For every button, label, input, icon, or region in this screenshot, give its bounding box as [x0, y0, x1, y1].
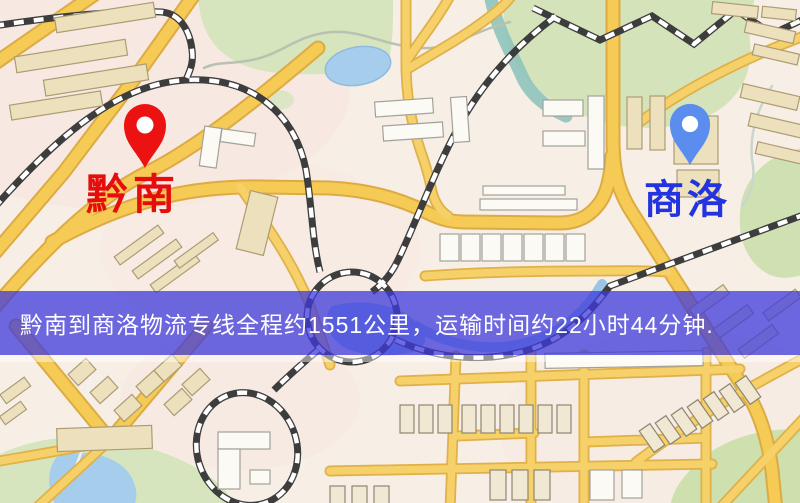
- destination-pin-icon[interactable]: [668, 102, 712, 167]
- map-background: [0, 0, 800, 503]
- banner-underline: [0, 355, 800, 362]
- route-info-banner: 黔南到商洛物流专线全程约1551公里，运输时间约22小时44分钟.: [0, 291, 800, 355]
- origin-pin-shape: [124, 104, 166, 168]
- origin-label: 黔南: [86, 175, 180, 217]
- origin-pin-icon[interactable]: [122, 102, 168, 170]
- map-canvas: 黔南 商洛 黔南到商洛物流专线全程约1551公里，运输时间约22小时44分钟.: [0, 0, 800, 503]
- destination-label: 商洛: [644, 180, 730, 220]
- route-info-text: 黔南到商洛物流专线全程约1551公里，运输时间约22小时44分钟.: [0, 306, 714, 340]
- destination-pin-shape: [670, 104, 710, 165]
